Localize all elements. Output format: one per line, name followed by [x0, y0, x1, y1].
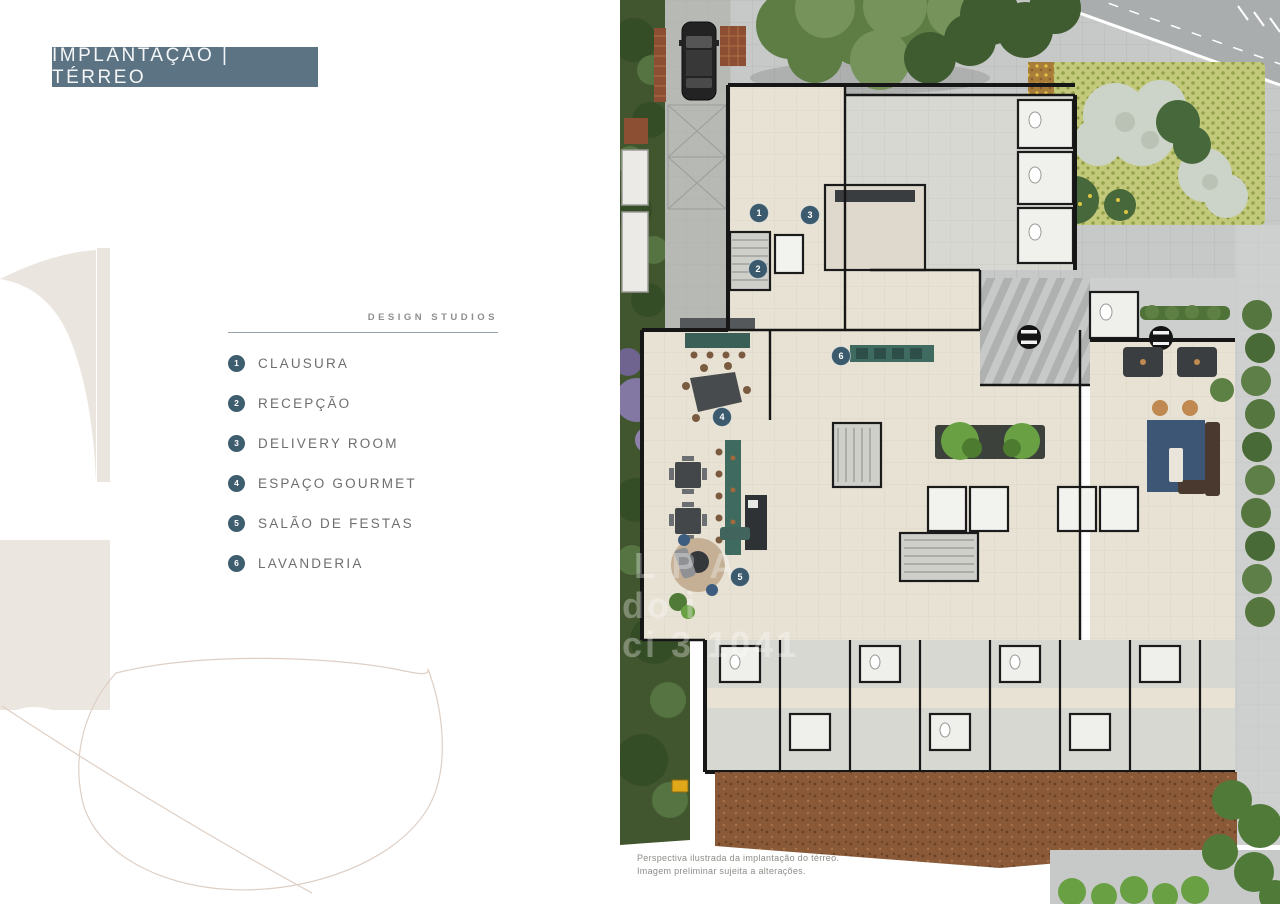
legend-number-badge: 4	[228, 475, 245, 492]
bathroom	[1090, 292, 1138, 338]
outline-curve	[79, 658, 443, 890]
potted-plant	[1210, 378, 1234, 402]
legend-item-delivery-room: 3DELIVERY ROOM	[228, 423, 498, 463]
site-plan: L P Ado ici 3 1041 123456	[620, 0, 1280, 904]
deco-circle-cutout	[0, 707, 90, 819]
planter-box	[622, 212, 648, 292]
teal-sofa	[720, 527, 750, 540]
caption-line-2: Imagem preliminar sujeita a alterações.	[637, 865, 839, 878]
svg-text:ci 3 1041: ci 3 1041	[622, 624, 799, 665]
plan-caption: Perspectiva ilustrada da implantação do …	[637, 852, 839, 878]
legend-heading: DESIGN STUDIOS	[228, 312, 498, 323]
svg-text:3: 3	[807, 210, 812, 220]
brochure-page: IMPLANTAÇÃO | TÉRREO DESIGN STUDIOS 1CLA…	[0, 0, 1280, 904]
legend-item-lavanderia: 6LAVANDERIA	[228, 543, 498, 583]
legend-label: ESPAÇO GOURMET	[258, 476, 417, 491]
svg-text:6: 6	[838, 351, 843, 361]
svg-text:2: 2	[755, 264, 760, 274]
bar-counter	[685, 333, 750, 348]
sofa	[1205, 422, 1220, 496]
manhole-icon	[1017, 325, 1041, 349]
bathroom	[1018, 100, 1073, 263]
svg-text:4: 4	[719, 412, 724, 422]
tile-planter	[624, 118, 648, 144]
coffee-table	[1169, 448, 1183, 482]
curved-shape	[0, 250, 96, 482]
legend-label: LAVANDERIA	[258, 556, 364, 571]
delivery-lockers	[835, 190, 915, 202]
yellow-cart	[672, 780, 688, 792]
legend-label: DELIVERY ROOM	[258, 436, 399, 451]
dining-table	[1123, 347, 1163, 377]
legend-label: SALÃO DE FESTAS	[258, 516, 414, 531]
svg-text:5: 5	[737, 572, 742, 582]
planter-box	[622, 150, 648, 205]
car	[679, 22, 719, 100]
legend-item-recep-o: 2RECEPÇÃO	[228, 383, 498, 423]
plan-marker-1: 1	[750, 204, 769, 223]
legend-number-badge: 5	[228, 515, 245, 532]
svg-text:do i: do i	[622, 585, 698, 626]
legend-number-badge: 1	[228, 355, 245, 372]
stairs	[833, 423, 881, 487]
outline-line	[2, 706, 312, 893]
svg-text:1: 1	[756, 208, 761, 218]
courtyard-planter	[935, 422, 1045, 460]
caption-line-1: Perspectiva ilustrada da implantação do …	[637, 852, 839, 865]
armchair	[1152, 400, 1168, 416]
legend: DESIGN STUDIOS 1CLAUSURA2RECEPÇÃO3DELIVE…	[228, 312, 498, 583]
legend-label: CLAUSURA	[258, 356, 349, 371]
plan-marker-4: 4	[713, 408, 732, 427]
legend-number-badge: 2	[228, 395, 245, 412]
armchair	[1182, 400, 1198, 416]
legend-number-badge: 3	[228, 435, 245, 452]
deco-bar	[97, 248, 110, 482]
svg-text:L P A: L P A	[634, 545, 738, 586]
legend-divider	[228, 332, 498, 333]
dining-table	[1177, 347, 1217, 377]
plan-marker-6: 6	[832, 347, 851, 366]
legend-item-clausura: 1CLAUSURA	[228, 343, 498, 383]
laundry	[850, 345, 934, 362]
plan-marker-5: 5	[731, 568, 750, 587]
plan-marker-3: 3	[801, 206, 820, 225]
legend-label: RECEPÇÃO	[258, 396, 351, 411]
legend-item-espa-o-gourmet: 4ESPAÇO GOURMET	[228, 463, 498, 503]
legend-items: 1CLAUSURA2RECEPÇÃO3DELIVERY ROOM4ESPAÇO …	[228, 343, 498, 583]
page-title: IMPLANTAÇÃO | TÉRREO	[52, 47, 318, 87]
deco-block	[0, 540, 110, 710]
legend-number-badge: 6	[228, 555, 245, 572]
plan-marker-2: 2	[749, 260, 768, 279]
tile-strip	[654, 28, 666, 102]
legend-item-sal-o-de-festas: 5SALÃO DE FESTAS	[228, 503, 498, 543]
